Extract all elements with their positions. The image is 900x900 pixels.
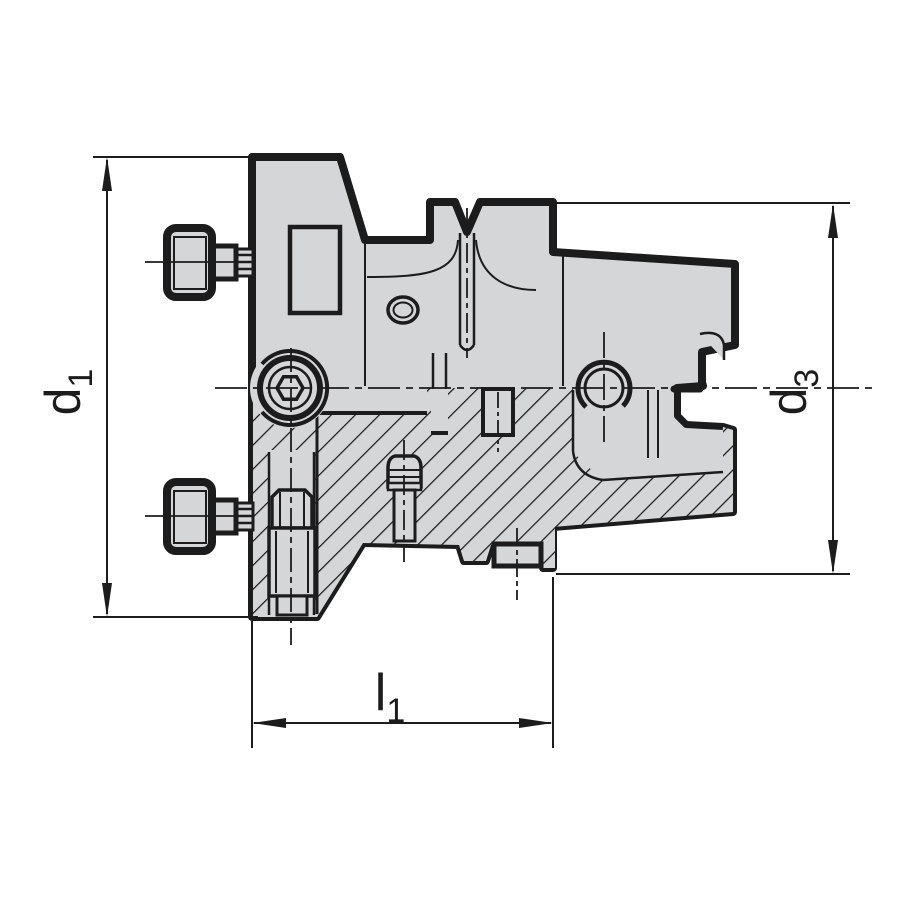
flange-pocket (290, 227, 340, 313)
d1-arrow-down (102, 583, 112, 617)
tool-holder-drawing: d1 d3 l1 (0, 0, 900, 900)
bore-mouth-edge (677, 390, 723, 427)
tool-holder-body (250, 157, 735, 617)
l1-arrow-left (252, 718, 286, 728)
l1-label: l1 (375, 664, 405, 730)
technical-drawing-canvas: d1 d3 l1 (0, 0, 900, 900)
body-oval-hole (388, 297, 418, 323)
slot-section-strip (431, 389, 448, 433)
d1-label: d1 (35, 369, 100, 416)
d3-arrow-up (828, 204, 838, 238)
l1-arrow-right (519, 718, 553, 728)
d1-arrow-up (102, 157, 112, 191)
clamp-bolt-section (269, 450, 315, 617)
lower-clamp-screw (145, 482, 253, 551)
d3-arrow-down (828, 540, 838, 574)
d3-label: d3 (761, 369, 826, 416)
upper-clamp-screw (145, 228, 253, 297)
